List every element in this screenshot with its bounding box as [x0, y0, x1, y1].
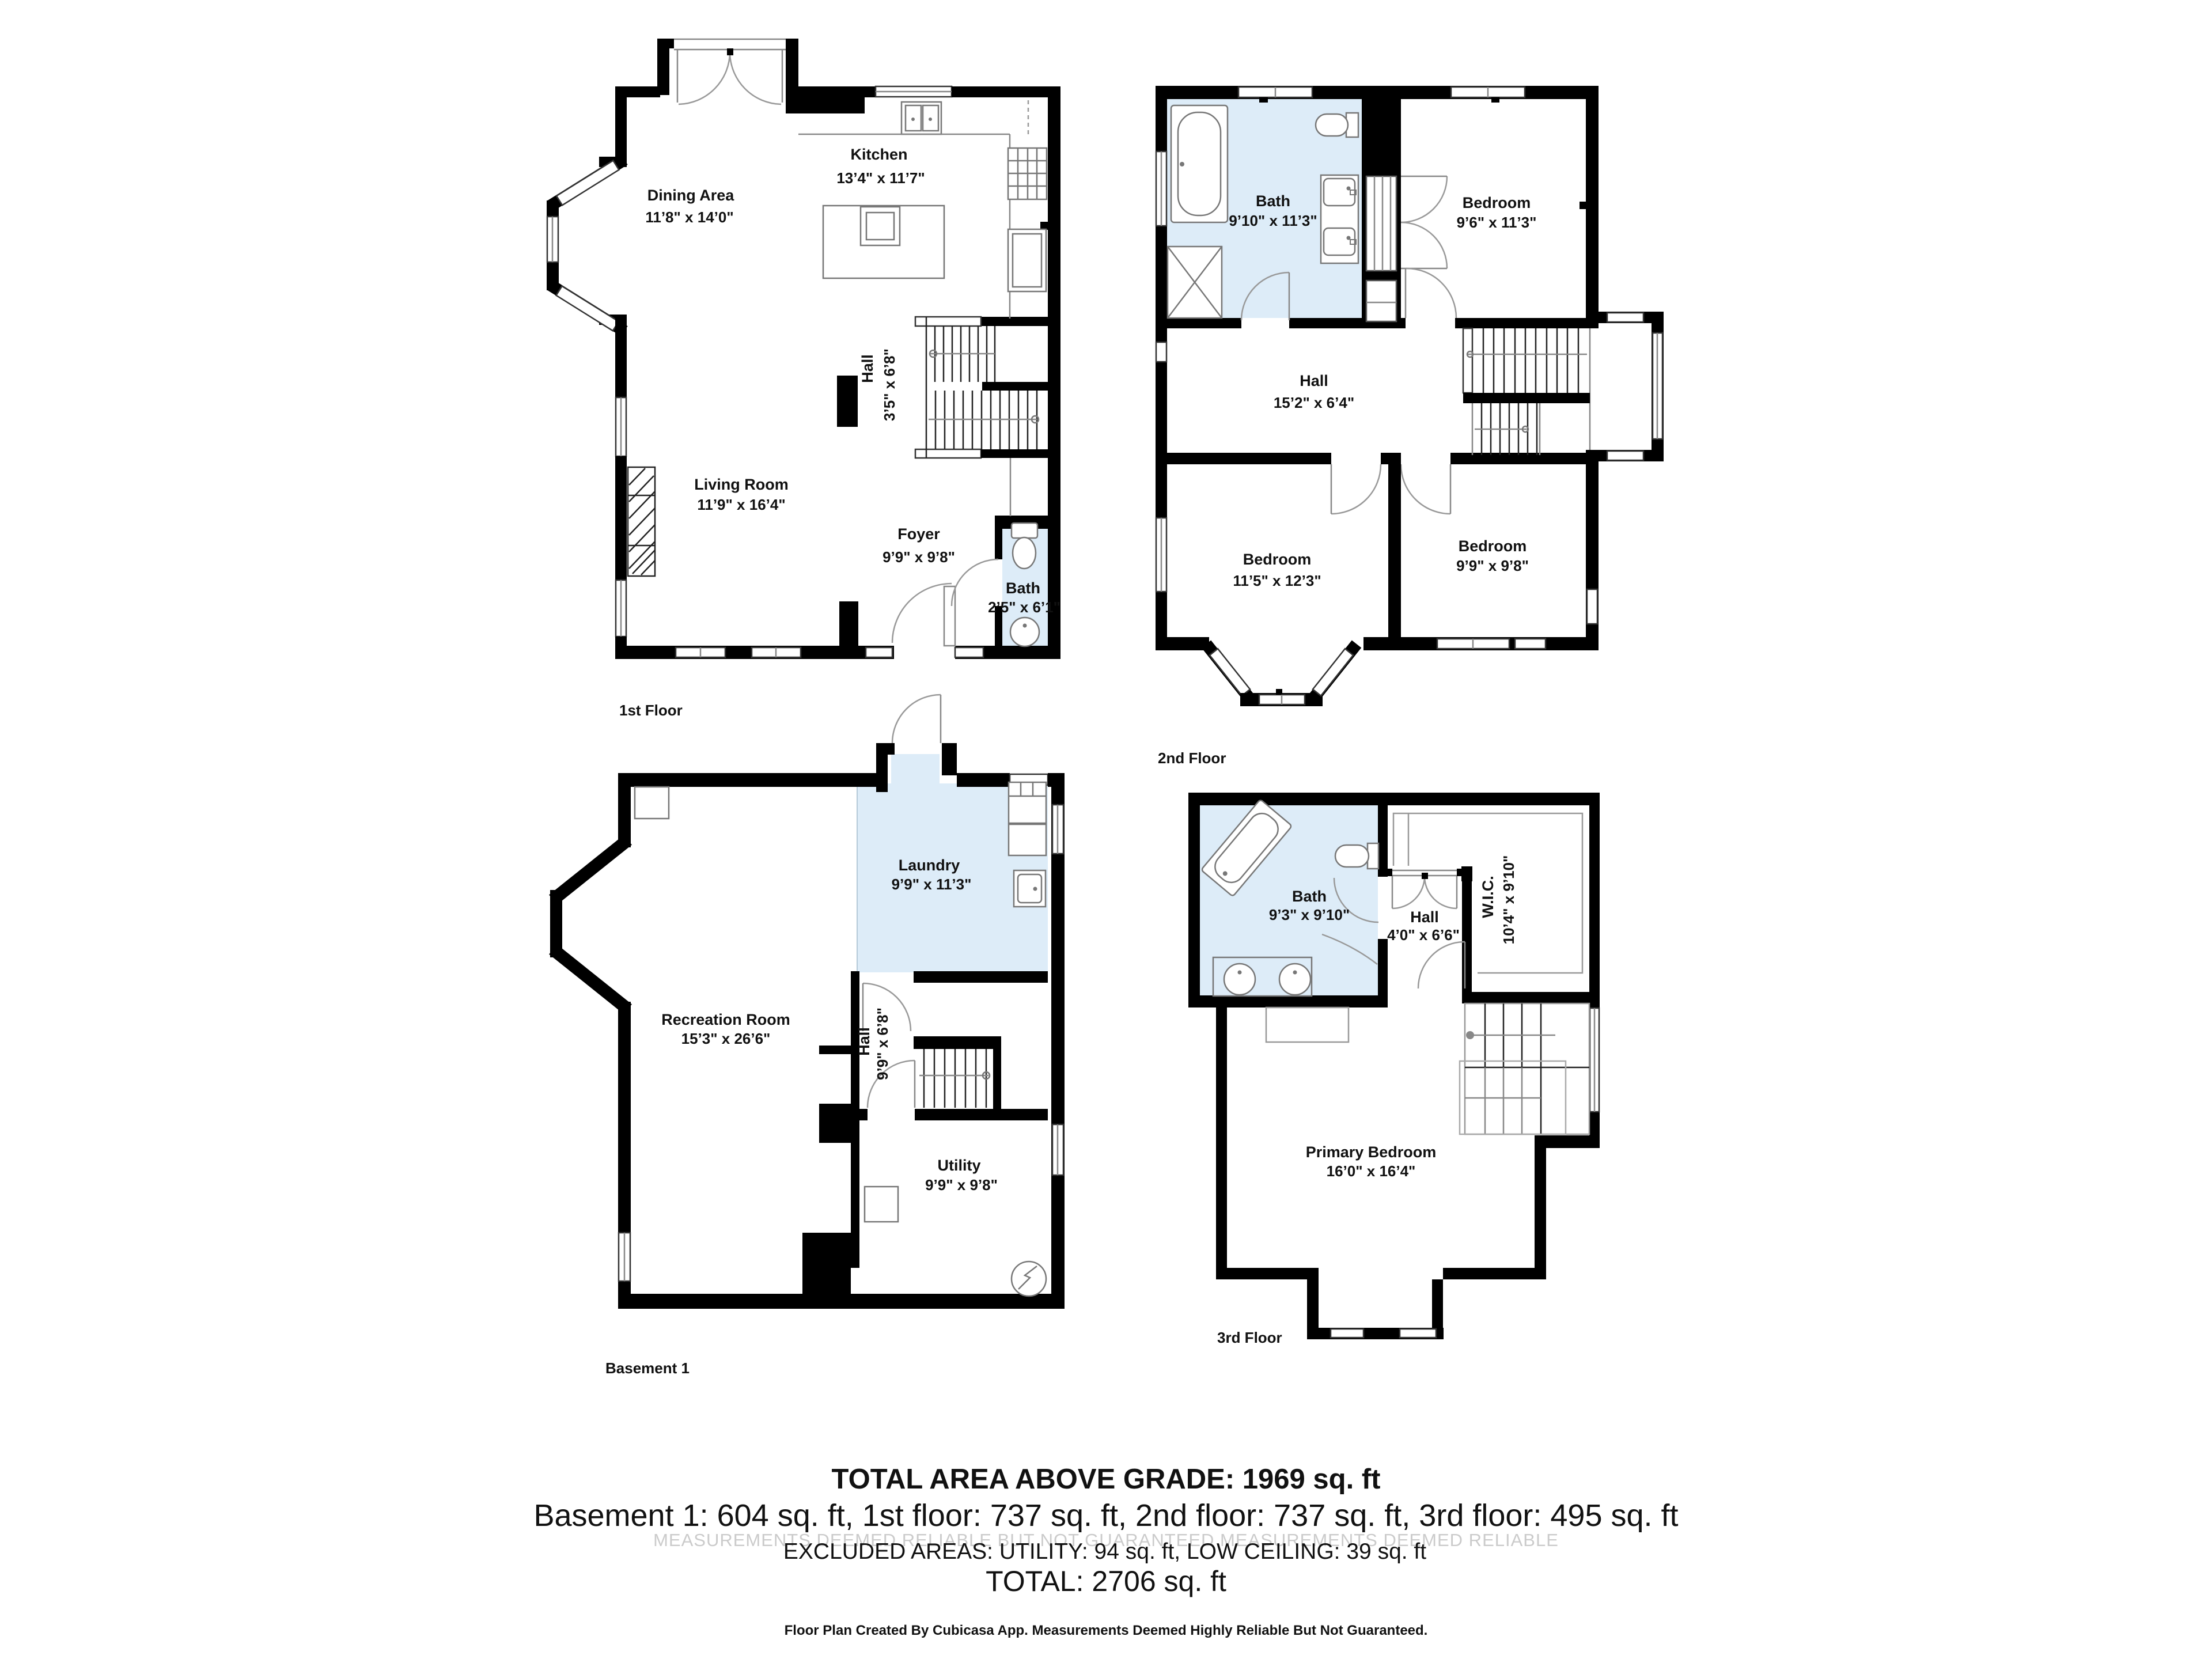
svg-text:13’4" x 11’7": 13’4" x 11’7": [836, 169, 925, 187]
svg-text:9’9" x 9’8": 9’9" x 9’8": [882, 548, 955, 566]
svg-text:9’9" x 9’8": 9’9" x 9’8": [1456, 557, 1529, 574]
svg-text:Living Room: Living Room: [694, 476, 789, 493]
svg-text:Bath: Bath: [1256, 192, 1290, 210]
svg-text:EXCLUDED AREAS: UTILITY: 94 sq: EXCLUDED AREAS: UTILITY: 94 sq. ft, LOW …: [783, 1539, 1426, 1564]
svg-text:Bath: Bath: [1292, 888, 1327, 905]
svg-text:9’3" x 9’10": 9’3" x 9’10": [1269, 906, 1350, 923]
svg-text:Bedroom: Bedroom: [1463, 194, 1531, 211]
svg-text:9’9" x 9’8": 9’9" x 9’8": [925, 1176, 998, 1194]
svg-text:2’5" x 6’1": 2’5" x 6’1": [988, 599, 1060, 616]
svg-text:Primary Bedroom: Primary Bedroom: [1306, 1143, 1437, 1161]
svg-text:Laundry: Laundry: [899, 857, 960, 874]
svg-text:9’10" x 11’3": 9’10" x 11’3": [1229, 212, 1317, 229]
svg-text:Recreation Room: Recreation Room: [661, 1011, 790, 1028]
svg-text:11’8" x 14’0": 11’8" x 14’0": [645, 209, 733, 226]
svg-text:Hall: Hall: [859, 354, 876, 383]
svg-text:Floor Plan Created By Cubicasa: Floor Plan Created By Cubicasa App. Meas…: [785, 1623, 1428, 1638]
svg-text:9’6" x 11’3": 9’6" x 11’3": [1457, 214, 1537, 231]
svg-text:3’5" x 6’8": 3’5" x 6’8": [881, 349, 898, 421]
svg-text:9’9" x 11’3": 9’9" x 11’3": [892, 876, 972, 893]
svg-text:Hall: Hall: [1300, 372, 1328, 389]
svg-text:2nd Floor: 2nd Floor: [1158, 749, 1226, 767]
svg-text:W.I.C.: W.I.C.: [1479, 876, 1497, 918]
svg-text:Utility: Utility: [937, 1157, 980, 1174]
svg-text:TOTAL: 2706 sq. ft: TOTAL: 2706 sq. ft: [986, 1565, 1226, 1597]
svg-text:1st Floor: 1st Floor: [619, 702, 683, 719]
svg-text:16’0" x 16’4": 16’0" x 16’4": [1327, 1162, 1416, 1180]
svg-text:Bedroom: Bedroom: [1459, 537, 1527, 555]
svg-text:11’9" x 16’4": 11’9" x 16’4": [697, 496, 785, 513]
svg-text:Kitchen: Kitchen: [850, 146, 907, 163]
svg-text:15’3" x 26’6": 15’3" x 26’6": [681, 1030, 771, 1047]
svg-text:Bath: Bath: [1006, 579, 1040, 597]
svg-text:Bedroom: Bedroom: [1243, 551, 1312, 568]
svg-text:11’5" x 12’3": 11’5" x 12’3": [1233, 572, 1321, 589]
svg-text:15’2" x 6’4": 15’2" x 6’4": [1274, 394, 1354, 411]
svg-text:Dining Area: Dining Area: [647, 187, 735, 204]
svg-text:9’9" x 6’8": 9’9" x 6’8": [874, 1007, 891, 1080]
svg-text:10’4" x 9’10": 10’4" x 9’10": [1500, 855, 1517, 945]
svg-text:Foyer: Foyer: [897, 525, 940, 543]
svg-text:Basement 1: Basement 1: [605, 1359, 690, 1377]
svg-text:3rd Floor: 3rd Floor: [1217, 1329, 1282, 1346]
svg-text:4’0" x 6’6": 4’0" x 6’6": [1387, 926, 1460, 944]
svg-text:TOTAL AREA ABOVE GRADE: 1969 s: TOTAL AREA ABOVE GRADE: 1969 sq. ft: [832, 1464, 1381, 1495]
svg-text:Hall: Hall: [855, 1027, 873, 1056]
svg-text:Hall: Hall: [1410, 908, 1439, 926]
svg-text:Basement 1: 604 sq. ft, 1st fl: Basement 1: 604 sq. ft, 1st floor: 737 s…: [533, 1498, 1678, 1533]
